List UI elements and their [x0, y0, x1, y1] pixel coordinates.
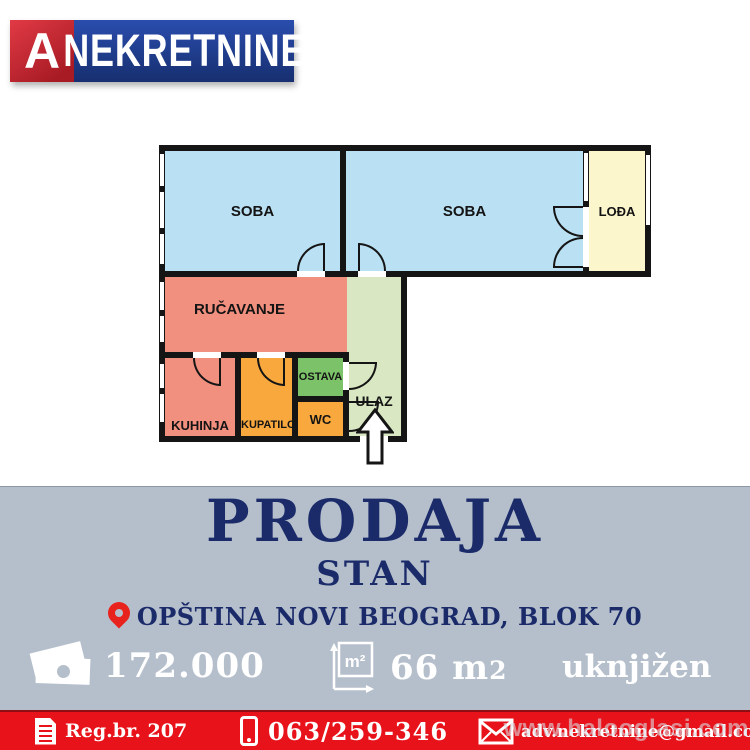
door-leaf — [553, 266, 583, 268]
logo-brand-text: NEKRETNINE — [63, 25, 305, 77]
money-icon — [28, 643, 94, 689]
door-opening — [297, 271, 325, 277]
listing-type: STAN — [0, 557, 750, 591]
room-label-soba-left: SOBA — [165, 204, 340, 219]
phone-number: 063/259-346 — [268, 717, 448, 746]
watermark-text: www.halooglasi.com — [504, 715, 749, 743]
price-value: 172.000 — [104, 646, 265, 686]
svg-text:m²: m² — [345, 652, 366, 671]
window-segment — [160, 364, 164, 388]
door-opening — [358, 271, 386, 277]
room-label-wc: WC — [298, 413, 343, 426]
area-group: m² 66 m2 — [330, 641, 508, 695]
window-segment — [646, 155, 650, 225]
phone-group: 063/259-346 — [240, 712, 448, 750]
location-text: OPŠTINA NOVI BEOGRAD, BLOK 70 — [137, 602, 642, 631]
room-label-lodja: LOĐA — [589, 205, 645, 218]
window-segment — [160, 282, 164, 310]
room-label-kuhinja: KUHINJA — [165, 419, 235, 432]
window-segment — [160, 394, 164, 422]
wall — [159, 145, 651, 151]
room-label-ostava: OSTAVA — [298, 372, 343, 383]
price-row: 172.000 m² 66 m2 uknjižen — [0, 641, 750, 695]
document-icon — [35, 718, 56, 745]
door-leaf — [323, 243, 325, 271]
agency-logo: A NEKRETNINE — [10, 20, 294, 82]
window-segment — [584, 153, 588, 201]
logo-brand-box: NEKRETNINE — [74, 20, 294, 82]
room-label-kupatilo: KUPATILO — [241, 420, 292, 431]
registration-group: Reg.br. 207 — [35, 712, 187, 750]
status-group: uknjižen — [562, 649, 711, 685]
price-group: 172.000 — [28, 643, 265, 689]
location-pin-icon — [103, 597, 134, 628]
window-segment — [160, 192, 164, 228]
registration-number: Reg.br. 207 — [65, 720, 187, 742]
window-segment — [160, 154, 164, 186]
door-leaf — [219, 358, 221, 386]
window-segment — [160, 316, 164, 342]
logo-letter: A — [24, 26, 60, 76]
entrance-arrow-icon — [356, 408, 394, 466]
listing-action: PRODAJA — [0, 492, 750, 550]
status-text: uknjižen — [562, 649, 711, 685]
area-value: 66 m2 — [390, 648, 508, 688]
room-label-ulaz: ULAZ — [347, 394, 401, 408]
area-exponent: 2 — [489, 656, 507, 685]
window-segment — [160, 234, 164, 264]
door-leaf — [283, 358, 285, 386]
listing-info-section: PRODAJA STAN OPŠTINA NOVI BEOGRAD, BLOK … — [0, 486, 750, 711]
door-leaf — [358, 243, 360, 271]
room-label-soba-right: SOBA — [346, 204, 583, 219]
room-label-rucavanje: RUČAVANJE — [167, 302, 312, 317]
floorplan: SOBA SOBA LOĐA RUČAVANJE KUHINJA KUPATIL… — [155, 140, 655, 470]
location-row: OPŠTINA NOVI BEOGRAD, BLOK 70 — [0, 602, 750, 631]
m2-area-icon: m² — [330, 641, 376, 695]
door-leaf — [349, 362, 377, 364]
wall — [159, 352, 349, 358]
phone-icon — [240, 716, 258, 746]
wall — [401, 271, 407, 442]
wall — [298, 396, 343, 402]
